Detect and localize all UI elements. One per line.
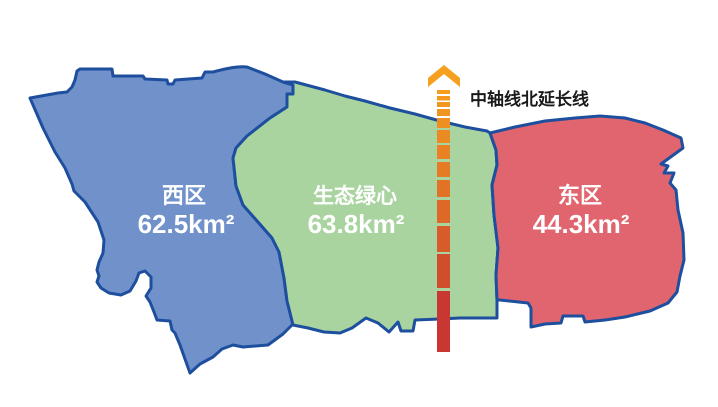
region-green-heart-name-label: 生态绿心 <box>313 184 397 208</box>
axis-dash <box>437 96 450 101</box>
axis-dash <box>437 90 450 94</box>
region-green-heart-area-label: 63.8km² <box>308 209 405 239</box>
axis-dash <box>437 130 450 143</box>
axis-arrow-icon <box>428 65 460 87</box>
axis-dash <box>437 254 450 288</box>
planning-map-canvas: 中轴线北延长线 西区 62.5km² 生态绿心 63.8km² 东区 44.3k… <box>0 0 718 407</box>
axis-dash <box>437 291 450 352</box>
axis-label: 中轴线北延长线 <box>470 89 589 109</box>
axis-dash <box>437 226 450 252</box>
axis-dash <box>437 145 450 159</box>
region-east-area-label: 44.3km² <box>533 209 630 239</box>
axis-dash <box>437 180 450 197</box>
axis-dash <box>437 162 450 177</box>
region-east-name-label: 东区 <box>558 183 602 208</box>
planning-map: 中轴线北延长线 西区 62.5km² 生态绿心 63.8km² 东区 44.3k… <box>0 0 718 407</box>
axis-dash <box>437 109 450 116</box>
axis-dash <box>437 200 450 223</box>
region-west-area-label: 62.5km² <box>138 209 235 239</box>
region-west-name-label: 西区 <box>162 183 206 208</box>
axis-dash <box>437 102 450 107</box>
axis-dash <box>437 118 450 128</box>
